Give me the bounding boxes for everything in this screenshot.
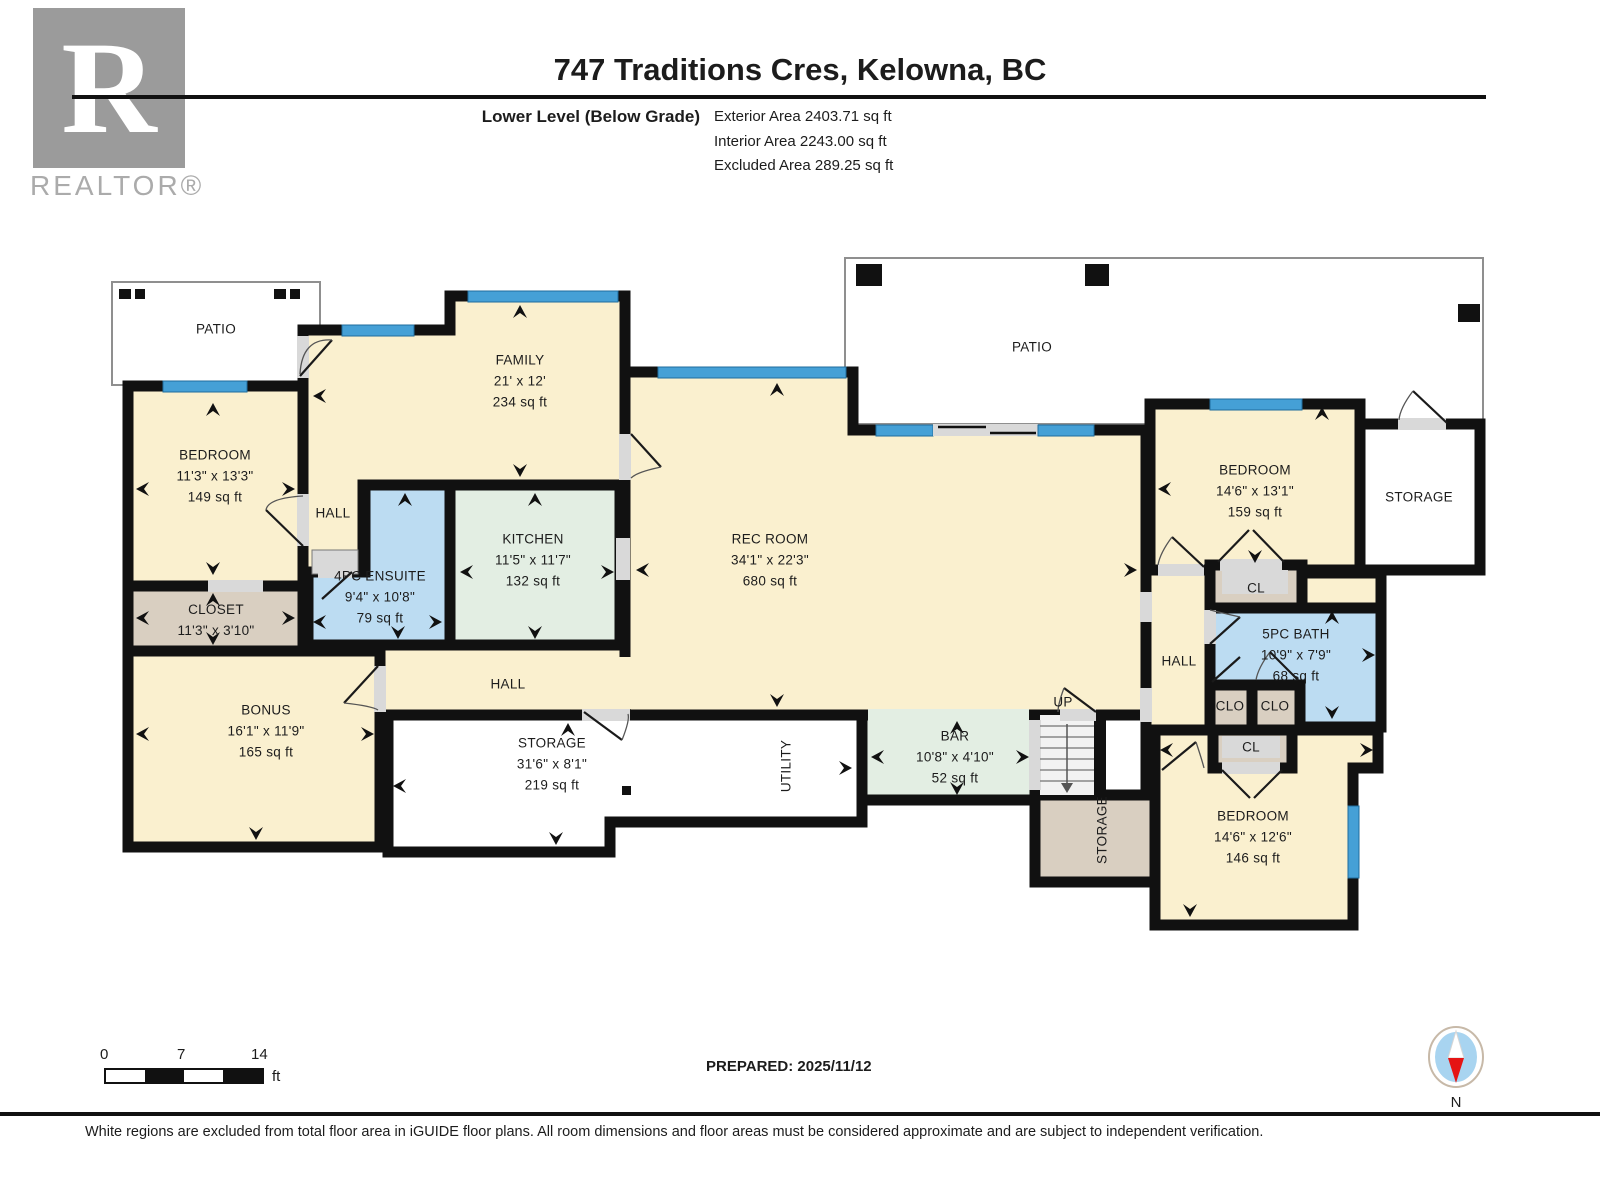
label-storage-stairs: STORAGE [1092, 796, 1113, 864]
label-hall-tl: HALL [316, 503, 351, 524]
scale-unit: ft [272, 1068, 280, 1085]
window-rec-patio-left [876, 425, 933, 436]
support-post [622, 786, 631, 795]
window-rec-patio-right [1038, 425, 1094, 436]
label-up: UP [1053, 692, 1072, 713]
label-bath: 5PC BATH10'9" x 7'9"68 sq ft [1261, 624, 1331, 687]
label-cl-top: CL [1247, 578, 1265, 599]
label-utility: UTILITY [776, 740, 797, 792]
scale-bar: 0 7 14 ft [104, 1046, 276, 1084]
window-rec-top [658, 367, 846, 378]
window-family-top [468, 291, 618, 302]
window-family-left [342, 325, 414, 336]
compass-north-label: N [1451, 1094, 1462, 1111]
scale-tick-14: 14 [251, 1046, 268, 1063]
scale-tick-7: 7 [177, 1046, 185, 1063]
label-bonus: BONUS16'1" x 11'9"165 sq ft [228, 700, 305, 763]
window-bedroom-tl [163, 381, 247, 392]
stairs-right-wall [1094, 710, 1106, 800]
label-hall-center: HALL [491, 674, 526, 695]
label-kitchen: KITCHEN11'5" x 11'7"132 sq ft [495, 529, 571, 592]
prepared-date: PREPARED: 2025/11/12 [706, 1058, 872, 1075]
label-clo-left: CLO [1216, 696, 1245, 717]
label-patio-left: PATIO [196, 319, 236, 340]
footer-divider [0, 1112, 1600, 1116]
label-clo-right: CLO [1261, 696, 1290, 717]
window-bedroom-tr [1210, 399, 1302, 410]
label-cl-bottom: CL [1242, 737, 1260, 758]
scale-ticks: 0 7 14 [104, 1046, 276, 1066]
label-rec-room: REC ROOM34'1" x 22'3"680 sq ft [731, 529, 809, 592]
label-bedroom-tr: BEDROOM14'6" x 13'1"159 sq ft [1216, 460, 1294, 523]
label-family: FAMILY21' x 12'234 sq ft [493, 350, 548, 413]
label-bar: BAR10'8" x 4'10"52 sq ft [916, 726, 994, 789]
label-patio-right: PATIO [1012, 337, 1052, 358]
label-bedroom-br: BEDROOM14'6" x 12'6"146 sq ft [1214, 806, 1292, 869]
scale-bar-segments [104, 1068, 264, 1084]
disclaimer-text: White regions are excluded from total fl… [85, 1124, 1485, 1140]
label-hall-right: HALL [1162, 651, 1197, 672]
window-bedroom-br [1348, 806, 1359, 878]
label-bedroom-tl: BEDROOM11'3" x 13'3"149 sq ft [177, 445, 254, 508]
floor-plan-page: R REALTOR® 747 Traditions Cres, Kelowna,… [0, 0, 1600, 1200]
label-storage-tr: STORAGE [1385, 487, 1453, 508]
label-storage-center: STORAGE31'6" x 8'1"219 sq ft [517, 733, 587, 796]
label-closet-tl: CLOSET11'3" x 3'10" [178, 599, 255, 641]
label-ensuite: 4PC ENSUITE9'4" x 10'8"79 sq ft [334, 566, 426, 629]
scale-tick-0: 0 [100, 1046, 108, 1063]
compass-icon [1429, 1027, 1483, 1087]
